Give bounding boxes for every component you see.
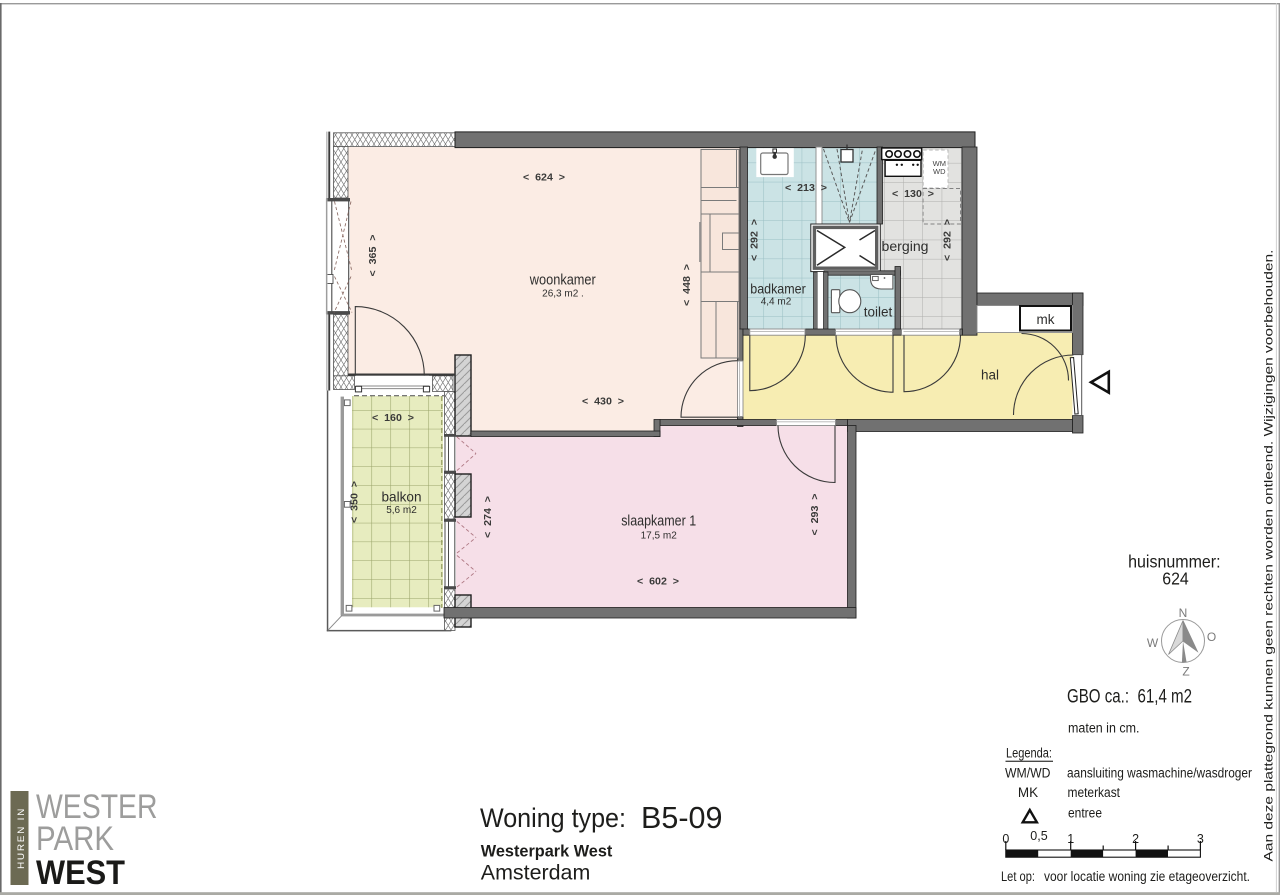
- svg-text:< 350 >: < 350 >: [349, 481, 361, 523]
- svg-text:WEST: WEST: [36, 854, 125, 892]
- svg-text:Legenda:: Legenda:: [1006, 746, 1052, 761]
- svg-text:Aan deze plattegrond kunnen ge: Aan deze plattegrond kunnen geen rechten…: [1262, 250, 1275, 862]
- svg-text:< 213 >: < 213 >: [785, 182, 827, 194]
- svg-text:WM/WD: WM/WD: [1005, 766, 1051, 781]
- svg-text:< 602 >: < 602 >: [637, 576, 679, 588]
- svg-text:voor locatie woning zie etageo: voor locatie woning zie etageoverzicht.: [1044, 869, 1250, 884]
- svg-text:WD: WD: [933, 167, 946, 176]
- svg-text:Westerpark West: Westerpark West: [481, 843, 613, 861]
- svg-text:woonkamer: woonkamer: [529, 272, 596, 289]
- svg-text:meterkast: meterkast: [1068, 785, 1121, 800]
- svg-text:B5-09: B5-09: [641, 800, 723, 835]
- svg-text:berging: berging: [882, 238, 929, 254]
- svg-text:GBO ca.: 61,4 m2: GBO ca.: 61,4 m2: [1067, 687, 1192, 708]
- svg-text:< 624 >: < 624 >: [523, 172, 565, 184]
- svg-text:17,5 m2: 17,5 m2: [641, 531, 678, 542]
- svg-text:< 430 >: < 430 >: [582, 396, 624, 408]
- svg-text:Woning type:: Woning type:: [480, 803, 626, 833]
- svg-text:balkon: balkon: [382, 489, 422, 505]
- svg-text:26,3 m2 .: 26,3 m2 .: [542, 289, 584, 300]
- svg-text:Let op:: Let op:: [1001, 869, 1035, 884]
- svg-text:< 130 >: < 130 >: [892, 188, 934, 200]
- svg-text:slaapkamer 1: slaapkamer 1: [621, 513, 696, 530]
- svg-text:4,4 m2: 4,4 m2: [761, 297, 792, 308]
- svg-text:hal: hal: [981, 368, 999, 383]
- svg-text:< 292 >: < 292 >: [749, 219, 761, 261]
- svg-text:< 365 >: < 365 >: [367, 235, 379, 277]
- svg-text:entree: entree: [1068, 806, 1102, 821]
- svg-text:< 274 >: < 274 >: [482, 496, 494, 538]
- svg-text:Z: Z: [1182, 665, 1189, 679]
- svg-text:N: N: [1179, 606, 1188, 620]
- svg-text:aansluiting wasmachine/wasdrog: aansluiting wasmachine/wasdroger: [1067, 766, 1252, 781]
- svg-text:toilet: toilet: [864, 305, 893, 320]
- svg-text:624: 624: [1162, 569, 1189, 589]
- svg-text:< 160 >: < 160 >: [372, 412, 414, 424]
- svg-text:HUREN IN: HUREN IN: [16, 807, 27, 869]
- svg-text:< 293 >: < 293 >: [809, 494, 821, 536]
- svg-text:Amsterdam: Amsterdam: [481, 861, 591, 885]
- svg-text:5,6 m2: 5,6 m2: [386, 505, 417, 516]
- svg-text:MK: MK: [1018, 785, 1038, 800]
- svg-text:0,5: 0,5: [1030, 829, 1047, 843]
- svg-text:PARK: PARK: [36, 820, 114, 858]
- svg-text:< 292 >: < 292 >: [942, 219, 954, 261]
- svg-text:< 448 >: < 448 >: [681, 264, 693, 306]
- svg-text:badkamer: badkamer: [750, 281, 806, 297]
- svg-text:O: O: [1207, 630, 1216, 644]
- svg-text:maten in cm.: maten in cm.: [1068, 721, 1140, 736]
- svg-text:mk: mk: [1037, 312, 1055, 327]
- svg-text:W: W: [1147, 636, 1159, 650]
